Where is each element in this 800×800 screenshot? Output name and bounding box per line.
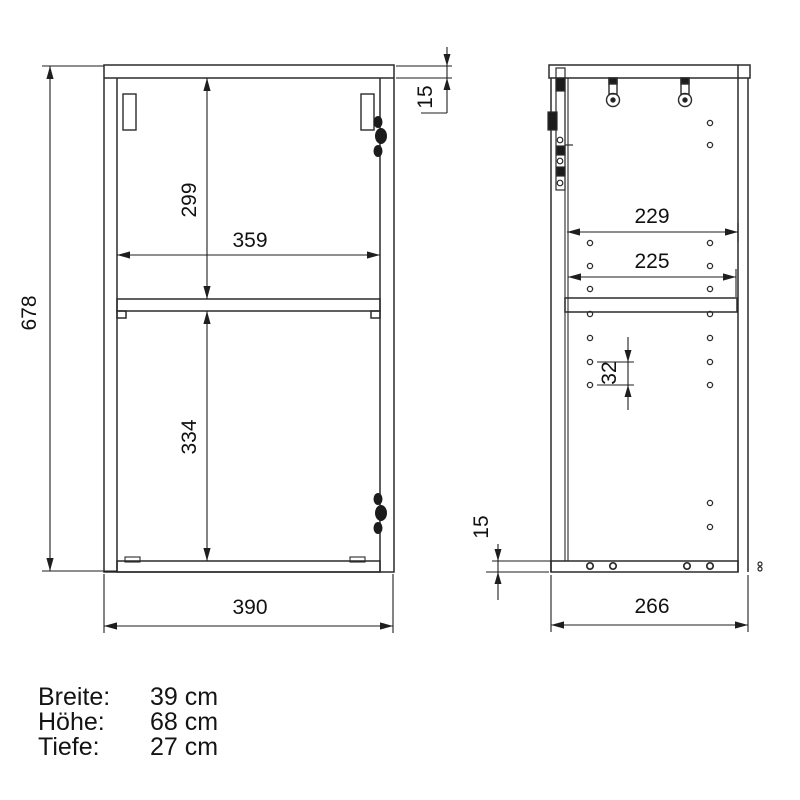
spec-row-tiefe: Tiefe: 27 cm: [38, 735, 218, 760]
dim-upper-compartment-height-label: 299: [178, 182, 201, 217]
dim-lower-compartment-height-label: 334: [178, 419, 201, 454]
front-shelf: [117, 299, 380, 311]
wall-bracket-right-icon: [679, 78, 692, 107]
front-bottom-panel: [117, 561, 380, 572]
dim-hole-pitch-label: 32: [598, 361, 621, 384]
side-view: [548, 65, 762, 572]
spec-row-hoehe: Höhe: 68 cm: [38, 710, 218, 735]
dim-front-overall-height: 678: [18, 66, 117, 571]
dim-overall-depth-label: 266: [634, 595, 669, 618]
technical-drawing-page: 678 15 299 359 334: [0, 0, 800, 800]
technical-drawing: 678 15 299 359 334: [0, 0, 800, 800]
dim-front-overall-height-label: 678: [18, 295, 41, 330]
spec-row-breite: Breite: 39 cm: [38, 685, 218, 710]
dim-inner-width: 359: [117, 229, 380, 255]
dim-shelf-depth-label: 225: [634, 250, 669, 273]
side-top-panel: [549, 65, 750, 78]
hinge-top-icon: [374, 116, 388, 157]
spec-label-hoehe: Höhe:: [38, 710, 150, 735]
door-bumper-icon: [758, 562, 762, 571]
spec-value-hoehe: 68 cm: [150, 710, 218, 735]
dim-front-overall-width: 390: [104, 574, 393, 633]
dim-shelf-depth: 225: [568, 250, 736, 297]
shelf-support-right-icon: [371, 311, 380, 318]
spec-label-breite: Breite:: [38, 685, 150, 710]
front-view: [104, 65, 394, 572]
dim-front-overall-width-label: 390: [232, 596, 267, 619]
dim-top-panel-thickness-label: 15: [414, 85, 437, 108]
dim-upper-compartment-height: 299: [178, 78, 207, 299]
shelf-pin-holes: [587, 120, 712, 529]
side-view-dimensions: 229 225 32 15: [470, 205, 748, 632]
spec-value-tiefe: 27 cm: [150, 735, 218, 760]
side-shelf: [565, 298, 737, 312]
dim-top-panel-thickness: 15: [396, 47, 452, 113]
dim-inner-width-label: 359: [232, 229, 267, 252]
wall-bracket-left-icon: [607, 78, 620, 107]
hinge-plate-left-icon: [123, 94, 136, 130]
spec-value-breite: 39 cm: [150, 685, 218, 710]
hinge-plate-right-icon: [361, 94, 374, 130]
dim-inner-depth: 229: [567, 205, 738, 242]
bottom-screw-holes: [587, 563, 713, 569]
spec-label-tiefe: Tiefe:: [38, 735, 150, 760]
front-carcass-outline: [104, 65, 394, 572]
hinge-bottom-icon: [374, 493, 388, 534]
dim-overall-depth: 266: [551, 575, 748, 632]
dim-lower-compartment-height: 334: [178, 311, 207, 561]
dimensions-summary: Breite: 39 cm Höhe: 68 cm Tiefe: 27 cm: [38, 685, 218, 760]
dim-hole-pitch: 32: [597, 337, 634, 410]
dim-bottom-panel-thickness: 15: [470, 515, 551, 600]
shelf-support-left-icon: [117, 311, 126, 318]
dim-inner-depth-label: 229: [634, 205, 669, 228]
dim-bottom-panel-thickness-label: 15: [470, 515, 493, 538]
